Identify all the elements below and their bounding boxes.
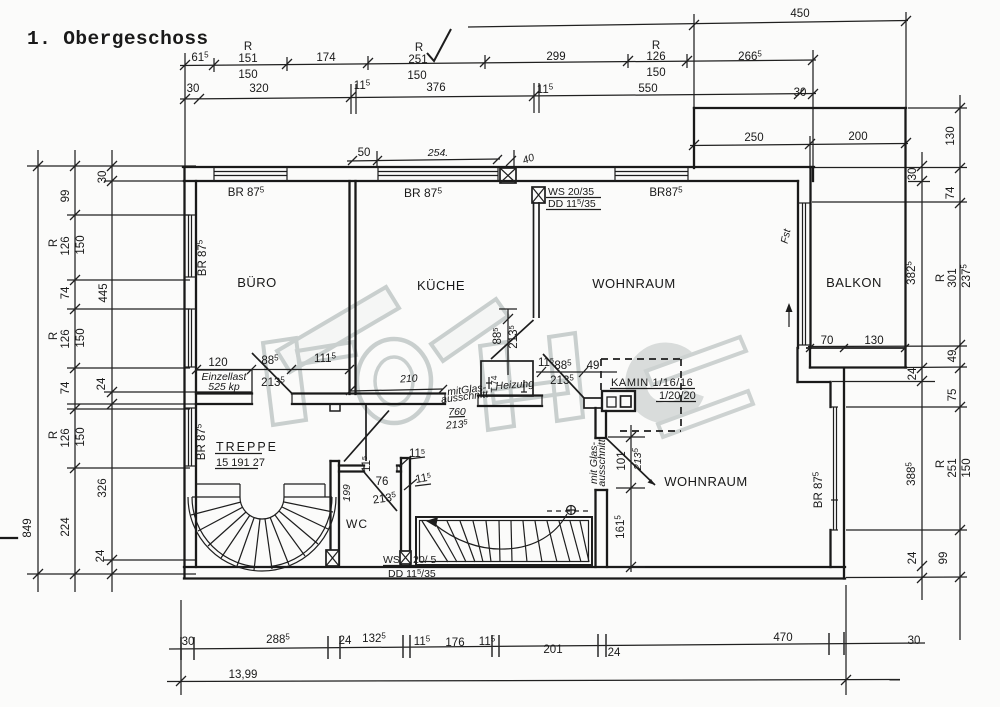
svg-text:99: 99 — [60, 190, 72, 203]
svg-text:130: 130 — [945, 126, 957, 145]
svg-text:126: 126 — [60, 236, 72, 255]
svg-text:KAMIN 1/16/16: KAMIN 1/16/16 — [611, 377, 693, 389]
svg-text:30: 30 — [187, 83, 200, 95]
svg-text:24: 24 — [608, 647, 621, 659]
svg-text:R: R — [48, 332, 60, 340]
svg-text:BALKON: BALKON — [826, 275, 882, 290]
svg-text:200: 200 — [848, 131, 867, 143]
svg-text:R: R — [48, 431, 60, 439]
svg-text:326: 326 — [97, 478, 109, 497]
svg-text:75: 75 — [947, 389, 959, 402]
svg-text:R: R — [935, 460, 947, 468]
svg-text:30: 30 — [908, 635, 921, 647]
svg-text:151: 151 — [238, 53, 257, 65]
svg-text:299: 299 — [546, 51, 565, 63]
svg-text:150: 150 — [75, 328, 87, 347]
svg-text:150: 150 — [75, 235, 87, 254]
svg-text:150: 150 — [238, 69, 257, 81]
svg-text:24: 24 — [907, 367, 919, 380]
svg-text:470: 470 — [773, 632, 792, 644]
svg-text:BR 875: BR 875 — [812, 471, 826, 508]
svg-text:BR 875: BR 875 — [195, 423, 209, 460]
svg-text:301: 301 — [947, 268, 959, 287]
svg-text:WS: WS — [383, 554, 400, 566]
svg-text:24: 24 — [96, 377, 108, 390]
svg-text:R: R — [244, 41, 252, 53]
svg-text:150: 150 — [75, 427, 87, 446]
svg-text:1/20/20: 1/20/20 — [659, 390, 696, 402]
svg-text:BR 875: BR 875 — [404, 186, 442, 201]
svg-text:KÜCHE: KÜCHE — [417, 278, 465, 293]
svg-text:130: 130 — [864, 335, 883, 347]
svg-text:BÜRO: BÜRO — [237, 275, 277, 290]
svg-text:376: 376 — [426, 82, 445, 94]
svg-text:150: 150 — [646, 67, 665, 79]
svg-text:30: 30 — [182, 636, 195, 648]
svg-text:126: 126 — [646, 51, 665, 63]
svg-text:210: 210 — [399, 373, 418, 386]
svg-text:250: 250 — [744, 132, 763, 144]
svg-text:525 kp: 525 kp — [208, 381, 240, 393]
svg-text:201: 201 — [543, 644, 562, 656]
svg-text:450: 450 — [790, 8, 809, 20]
svg-text:13,99: 13,99 — [229, 669, 258, 681]
svg-text:126: 126 — [60, 428, 72, 447]
svg-text:30: 30 — [794, 87, 807, 99]
svg-text:199: 199 — [341, 484, 353, 502]
svg-text:ausschnitt: ausschnitt — [596, 438, 608, 486]
svg-text:74: 74 — [60, 286, 72, 299]
svg-text:74: 74 — [60, 381, 72, 394]
svg-text:445: 445 — [98, 283, 110, 302]
svg-text:849: 849 — [22, 518, 34, 537]
svg-text:49: 49 — [587, 360, 600, 372]
svg-text:DD 115/35: DD 115/35 — [548, 197, 596, 210]
svg-text:76: 76 — [376, 476, 389, 488]
svg-text:176: 176 — [445, 637, 464, 649]
svg-text:150: 150 — [407, 70, 426, 82]
svg-text:WC: WC — [346, 517, 368, 531]
svg-text:254.: 254. — [427, 147, 448, 159]
svg-text:101: 101 — [616, 451, 628, 470]
svg-text:320: 320 — [249, 83, 268, 95]
svg-text:TREPPE: TREPPE — [216, 440, 278, 454]
svg-text:WOHNRAUM: WOHNRAUM — [592, 276, 675, 291]
svg-text:24: 24 — [339, 635, 352, 647]
svg-text:15 191 27: 15 191 27 — [216, 457, 265, 469]
svg-text:150: 150 — [961, 458, 973, 477]
svg-text:BR 875: BR 875 — [228, 186, 265, 200]
svg-text:70: 70 — [821, 335, 834, 347]
svg-text:WS 20/35: WS 20/35 — [548, 186, 594, 198]
svg-text:99: 99 — [938, 552, 950, 565]
svg-text:30: 30 — [907, 168, 919, 181]
svg-text:1. Obergeschoss: 1. Obergeschoss — [27, 28, 209, 50]
svg-text:126: 126 — [60, 329, 72, 348]
svg-text:251: 251 — [947, 458, 959, 477]
svg-text:224: 224 — [60, 517, 72, 537]
svg-text:120: 120 — [208, 357, 227, 369]
svg-text:74: 74 — [945, 186, 957, 199]
svg-text:BR875: BR875 — [649, 186, 683, 200]
svg-text:251: 251 — [408, 54, 427, 66]
svg-text:24: 24 — [907, 551, 919, 564]
svg-text:49: 49 — [947, 350, 959, 363]
svg-text:174: 174 — [316, 52, 336, 64]
svg-text:R: R — [935, 274, 947, 282]
svg-text:BR 875: BR 875 — [196, 239, 210, 276]
svg-text:R: R — [415, 42, 423, 54]
svg-text:550: 550 — [638, 83, 657, 95]
svg-text:WOHNRAUM: WOHNRAUM — [664, 474, 747, 489]
svg-text:R: R — [48, 239, 60, 247]
svg-text:50: 50 — [358, 147, 371, 159]
svg-text:DD 115/35: DD 115/35 — [388, 567, 436, 580]
